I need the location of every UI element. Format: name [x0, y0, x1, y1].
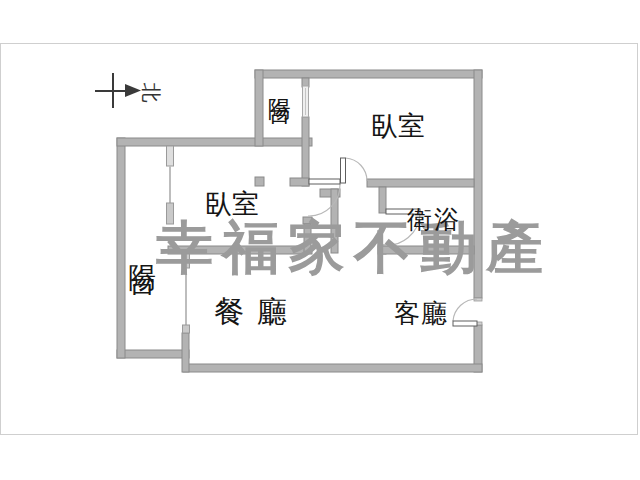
window-balcony-top-bedroom-right: [303, 86, 309, 117]
wall-bottom-exterior: [183, 364, 482, 372]
north-label: 北: [137, 83, 164, 103]
room-label-balcony-top: 陽台: [268, 81, 292, 83]
agency-watermark: 幸福家不動產: [156, 210, 552, 287]
room-label-bathroom: 衛浴: [407, 207, 461, 233]
room-label-balcony-left: 陽台: [128, 243, 157, 247]
room-label-dining: 餐廳: [214, 296, 300, 328]
room-label-living: 客廳: [394, 300, 448, 327]
north-arrow: [95, 73, 141, 108]
wall-left-exterior: [117, 138, 125, 358]
wall-top-exterior: [255, 70, 482, 78]
wall-bedroom-left-top: [117, 138, 312, 146]
wall-divider: [302, 117, 309, 186]
room-label-bedroom-right: 臥室: [371, 112, 425, 140]
wall-balcony-top-left: [255, 70, 263, 146]
floor-plan-canvas: 幸福家不動產 北 陽台 臥室 臥室 陽台 衛浴 餐廳 客廳: [0, 0, 640, 480]
wall-balcony-left-bottom: [117, 350, 189, 358]
door-bedroom-right: [341, 158, 368, 183]
door-entry: [453, 299, 477, 326]
wall-closet-jamb-right: [290, 178, 309, 186]
wall-bedroom-right-bottom: [367, 179, 474, 187]
wall-closet-jamb-left: [255, 177, 264, 186]
room-label-bedroom-left: 臥室: [205, 190, 259, 218]
wall-window2-step: [182, 333, 189, 372]
